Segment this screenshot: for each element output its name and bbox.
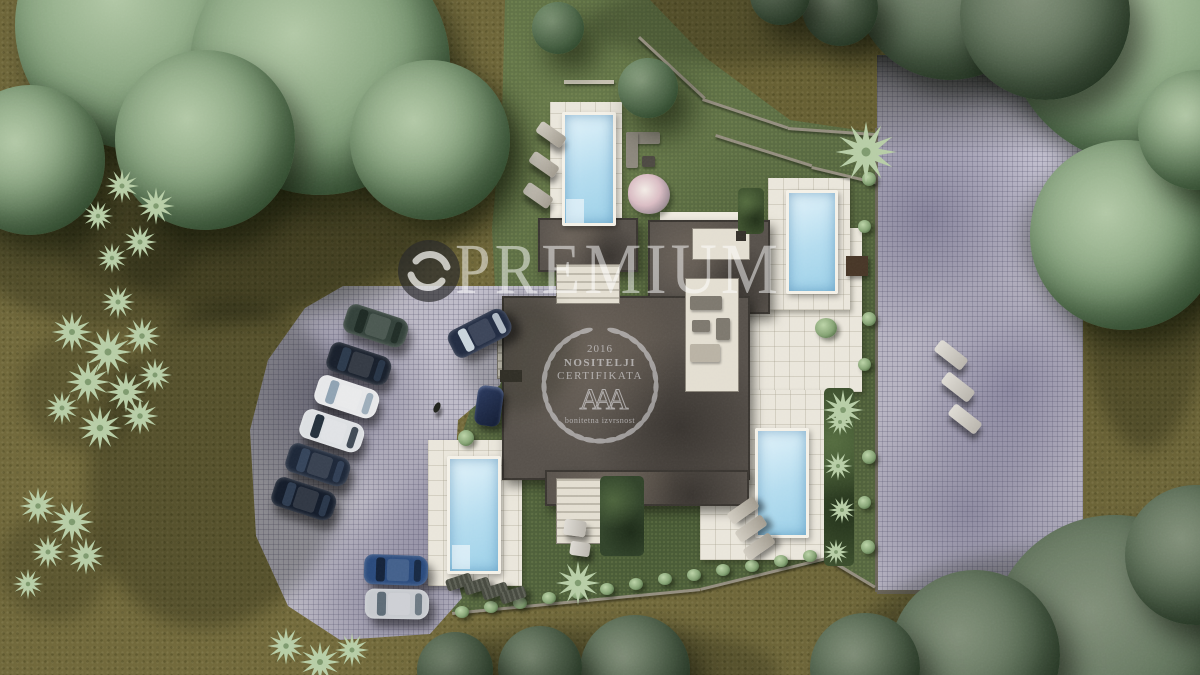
car [365, 588, 430, 619]
bush [687, 569, 701, 581]
wall-shrub [858, 220, 871, 233]
stamp-year: 2016 [587, 343, 613, 355]
bush [600, 583, 614, 595]
hedge-strip [600, 476, 644, 556]
fern-border [824, 388, 854, 566]
shadow [0, 510, 110, 620]
bush [571, 587, 585, 599]
premium-watermark-text: PREMIUM [455, 228, 782, 311]
shadow [20, 330, 140, 450]
coffee-table [692, 320, 710, 332]
wall-shrub [861, 540, 875, 554]
bush [658, 573, 672, 585]
stamp-line2: CERTIFIKATA [557, 370, 643, 382]
car [363, 554, 428, 586]
certificate-stamp-watermark: 2016 NOSITELJI CERTIFIKATA AAA bonitetna… [525, 310, 675, 460]
bush [803, 550, 817, 562]
stepping-stone [563, 519, 587, 538]
stamp-monogram: AAA [580, 383, 629, 416]
flowering-bush [628, 174, 670, 214]
wall-shrub [862, 450, 876, 464]
bush [542, 592, 556, 604]
stepping-stone [569, 541, 591, 558]
tree-canopy [115, 50, 295, 230]
pool-steps [566, 199, 584, 223]
wall-shrub [858, 358, 871, 371]
armchair [716, 318, 730, 340]
bush [484, 601, 498, 613]
fire-table [642, 156, 655, 167]
bush [774, 555, 788, 567]
wall-shrub [862, 312, 876, 326]
garden-path [564, 80, 614, 84]
bush [629, 578, 643, 590]
bush [815, 318, 837, 338]
swimming-pool-north [562, 112, 616, 226]
bush [455, 606, 469, 618]
driveway-edge-wall [875, 128, 878, 592]
rug [690, 344, 720, 362]
aerial-villa-render: PREMIUM 2016 NOSITELJI CERTIFIKATA AA [0, 0, 1200, 675]
wall-shrub [862, 172, 876, 186]
bush [716, 564, 730, 576]
tree-canopy [532, 2, 584, 54]
tree-canopy [350, 60, 510, 220]
premium-logo-icon [396, 238, 462, 304]
bush [458, 430, 474, 446]
garden-sofa [626, 132, 638, 168]
bush [745, 560, 759, 572]
swimming-pool-south [447, 456, 501, 574]
outdoor-fireplace [846, 256, 868, 276]
wall-shrub [858, 496, 871, 509]
pool-steps [452, 545, 470, 569]
swimming-pool-northeast [786, 190, 838, 294]
tree-canopy [618, 58, 678, 118]
stamp-line1: NOSITELJI [564, 357, 636, 369]
stamp-tagline: bonitetna izvrsnost [565, 416, 635, 425]
